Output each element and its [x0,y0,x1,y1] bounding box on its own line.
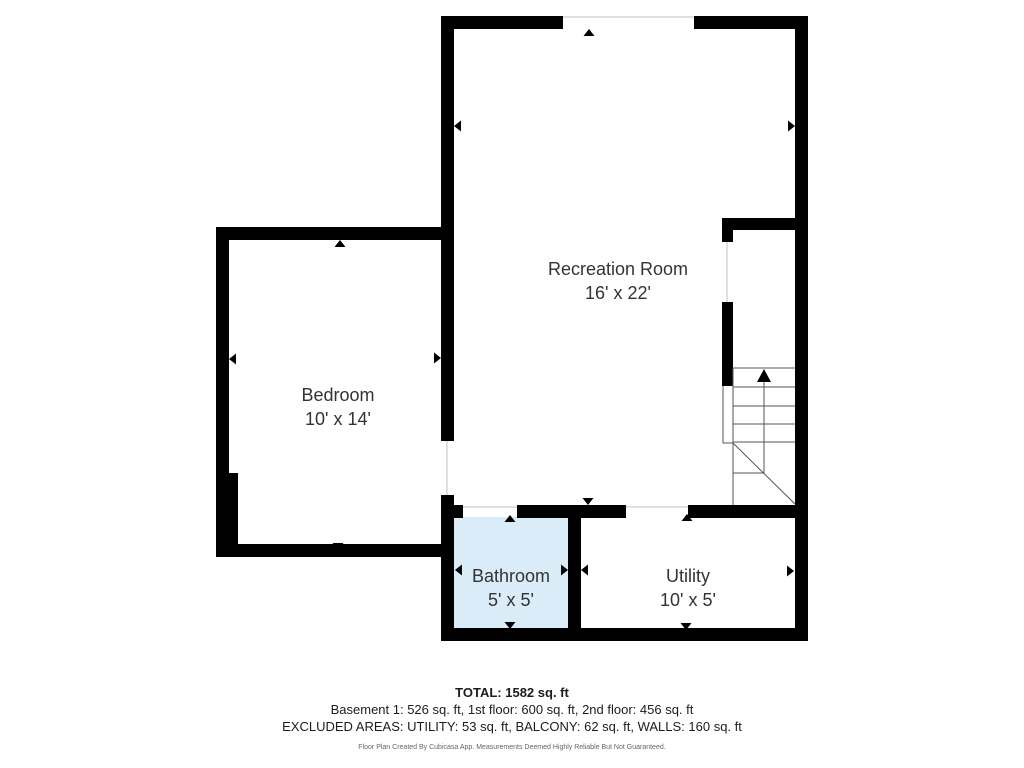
stair-wall-mid [722,302,733,386]
recroom-bedroom-shared-wall [441,16,454,441]
stair-enclosure-top-wall [723,218,808,230]
area-summary: TOTAL: 1582 sq. ft Basement 1: 526 sq. f… [0,684,1024,752]
floor-plan: Recreation Room 16' x 22' Bedroom 10' x … [0,0,1024,768]
excluded-areas-text: EXCLUDED AREAS: UTILITY: 53 sq. ft, BALC… [0,718,1024,735]
measure-arrow-up-icon [584,29,595,36]
exterior-top-wall-right [694,16,808,29]
measure-arrow-down-icon [583,498,594,505]
bedroom-top-wall [216,227,441,240]
measure-arrow-left-icon [581,565,588,576]
total-area-text: TOTAL: 1582 sq. ft [0,684,1024,701]
bedroom-bottom-wall [216,544,446,557]
disclaimer-text: Floor Plan Created By Cubicasa App. Meas… [0,743,1024,752]
exterior-top-wall-left [441,16,563,29]
bathroom-highlight-fill [454,517,568,628]
floor-areas-text: Basement 1: 526 sq. ft, 1st floor: 600 s… [0,701,1024,718]
measure-arrow-right-icon [787,566,794,577]
bedroom-left-wall [216,227,229,473]
measure-arrow-left-icon [229,354,236,365]
openings [447,17,727,507]
exterior-right-wall [795,16,808,641]
exterior-bottom-wall [441,628,808,641]
measure-arrow-right-icon [434,353,441,364]
floor-plan-drawing [0,0,1024,768]
stair-direction-arrow-icon [757,369,771,382]
stair-wall-upper-stub [722,218,733,242]
measure-arrow-right-icon [788,121,795,132]
staircase [723,368,795,505]
recroom-bottom-wall-left [441,505,463,518]
bathroom-utility-divider-wall [568,505,581,628]
recroom-bottom-wall-right [688,505,808,518]
measure-arrow-up-icon [335,240,346,247]
measure-arrow-left-icon [454,121,461,132]
